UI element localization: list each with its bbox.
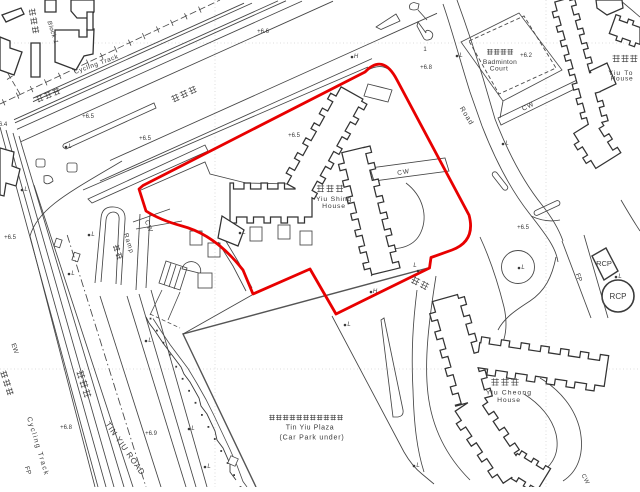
svg-text:L: L	[347, 322, 350, 328]
svg-text:L: L	[413, 263, 416, 269]
svg-text:L: L	[148, 338, 151, 344]
svg-text:L: L	[521, 265, 524, 271]
svg-text:L: L	[618, 274, 621, 280]
svg-text:RCP: RCP	[596, 259, 612, 268]
svg-text:Tin Yiu Plaza: Tin Yiu Plaza	[286, 425, 334, 432]
svg-text:+6.2: +6.2	[520, 53, 533, 59]
svg-text:H: H	[373, 289, 378, 295]
svg-text:L: L	[68, 144, 71, 150]
svg-text:L: L	[459, 53, 462, 59]
svg-text:+6.8: +6.8	[420, 65, 433, 71]
svg-text:L: L	[191, 426, 194, 432]
svg-text:L: L	[416, 463, 419, 469]
svg-text:+6.5: +6.5	[288, 133, 301, 139]
svg-text:L: L	[505, 141, 508, 147]
svg-text:+6.5: +6.5	[517, 225, 530, 231]
svg-text:+6.5: +6.5	[139, 136, 152, 142]
svg-text:House: House	[610, 76, 633, 83]
svg-text:L: L	[71, 271, 74, 277]
svg-text:H: H	[354, 54, 359, 60]
svg-text:RCP: RCP	[610, 292, 627, 301]
svg-text:+6.6: +6.6	[257, 29, 270, 35]
svg-text:6.4: 6.4	[0, 122, 8, 128]
svg-text:(Car Park under): (Car Park under)	[280, 435, 345, 442]
svg-text:+6.5: +6.5	[4, 235, 17, 241]
svg-text:Court: Court	[490, 66, 509, 73]
svg-text:L: L	[207, 464, 210, 470]
svg-text:L: L	[91, 232, 94, 238]
svg-text:House: House	[497, 397, 521, 404]
svg-text:L: L	[24, 187, 27, 193]
svg-text:+6.9: +6.9	[145, 431, 158, 437]
svg-text:+6.8: +6.8	[60, 425, 73, 431]
svg-text:Yiu Cheong: Yiu Cheong	[486, 390, 532, 397]
svg-text:+6.5: +6.5	[82, 114, 95, 120]
svg-text:L: L	[242, 230, 245, 236]
svg-text:Yiu Shing: Yiu Shing	[316, 196, 352, 203]
svg-text:House: House	[322, 203, 346, 210]
